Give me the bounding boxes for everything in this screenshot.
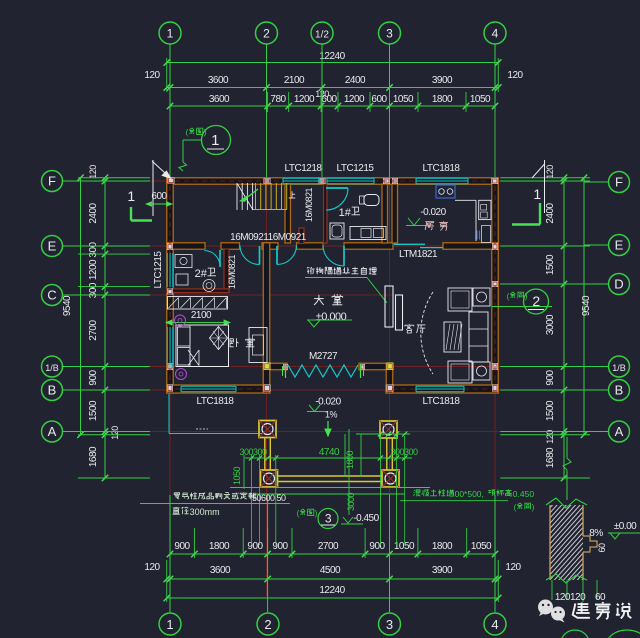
svg-text:LTC1818: LTC1818 bbox=[197, 396, 235, 407]
svg-text:C: C bbox=[47, 288, 56, 303]
svg-text:D: D bbox=[614, 277, 623, 292]
svg-text:1200: 1200 bbox=[88, 259, 99, 280]
svg-text:4740: 4740 bbox=[319, 447, 340, 458]
svg-text:1/2: 1/2 bbox=[315, 30, 329, 41]
svg-text:1/B: 1/B bbox=[45, 363, 59, 373]
svg-text:12240: 12240 bbox=[319, 51, 345, 62]
svg-text:): ) bbox=[315, 509, 318, 518]
svg-text:3: 3 bbox=[325, 512, 332, 526]
svg-text:1050: 1050 bbox=[232, 466, 242, 485]
svg-text:300: 300 bbox=[88, 282, 99, 298]
svg-text:900: 900 bbox=[272, 541, 288, 552]
svg-text:300300: 300300 bbox=[390, 447, 418, 457]
svg-text:F: F bbox=[48, 174, 56, 189]
svg-text:1800: 1800 bbox=[432, 94, 453, 105]
svg-text:120: 120 bbox=[507, 70, 523, 81]
svg-text:120: 120 bbox=[88, 165, 98, 179]
svg-text:LTM1821: LTM1821 bbox=[399, 249, 438, 260]
svg-text:16M092116M0921: 16M092116M0921 bbox=[230, 232, 307, 243]
svg-text:1500: 1500 bbox=[545, 400, 556, 421]
svg-text:3000: 3000 bbox=[346, 492, 356, 511]
svg-text:1050: 1050 bbox=[471, 541, 492, 552]
svg-text:2400: 2400 bbox=[345, 75, 366, 86]
svg-text:16M0821: 16M0821 bbox=[227, 254, 237, 289]
svg-text:120: 120 bbox=[505, 562, 521, 573]
svg-text:2700: 2700 bbox=[318, 541, 339, 552]
svg-text:1800: 1800 bbox=[345, 450, 355, 469]
svg-text:B: B bbox=[48, 383, 57, 398]
svg-text:2100: 2100 bbox=[284, 75, 305, 86]
svg-text:B: B bbox=[615, 383, 624, 398]
svg-text:3: 3 bbox=[386, 617, 393, 632]
svg-text:A: A bbox=[48, 424, 57, 439]
svg-text:120: 120 bbox=[144, 562, 160, 573]
svg-text:2400: 2400 bbox=[88, 202, 99, 223]
svg-text:3600: 3600 bbox=[208, 75, 229, 86]
svg-text:8%: 8% bbox=[589, 528, 603, 539]
svg-text:1050: 1050 bbox=[393, 94, 414, 105]
svg-text:A: A bbox=[615, 424, 624, 439]
svg-text:50600 50: 50600 50 bbox=[252, 493, 286, 503]
svg-text:600: 600 bbox=[371, 94, 387, 105]
svg-text:LTC1818: LTC1818 bbox=[423, 163, 461, 174]
svg-text:120: 120 bbox=[144, 70, 160, 81]
svg-text:1: 1 bbox=[127, 188, 135, 204]
svg-text:-0.020: -0.020 bbox=[420, 207, 446, 218]
svg-text:300: 300 bbox=[88, 241, 99, 257]
svg-text:1050: 1050 bbox=[470, 94, 491, 105]
svg-text:900: 900 bbox=[369, 541, 385, 552]
svg-text:3900: 3900 bbox=[432, 75, 453, 86]
svg-text:±0.00: ±0.00 bbox=[614, 521, 637, 532]
svg-text:1#: 1# bbox=[339, 207, 352, 219]
svg-text:2400: 2400 bbox=[545, 202, 556, 223]
svg-text:1500: 1500 bbox=[545, 254, 556, 275]
svg-text:3: 3 bbox=[386, 27, 393, 41]
svg-text:900: 900 bbox=[545, 369, 556, 385]
svg-text:1200: 1200 bbox=[344, 94, 365, 105]
svg-text:1200: 1200 bbox=[294, 94, 315, 105]
svg-text:1%: 1% bbox=[325, 410, 338, 420]
svg-text:2700: 2700 bbox=[88, 320, 99, 341]
svg-text:600: 600 bbox=[151, 191, 167, 202]
svg-text:E: E bbox=[615, 238, 624, 253]
svg-text:1: 1 bbox=[167, 27, 174, 41]
svg-text:1680: 1680 bbox=[88, 446, 99, 467]
svg-text:3000: 3000 bbox=[545, 314, 556, 335]
svg-text:16M0821: 16M0821 bbox=[304, 187, 314, 222]
svg-text:M2727: M2727 bbox=[309, 351, 338, 362]
svg-text:-0.450: -0.450 bbox=[353, 513, 379, 524]
svg-text:1: 1 bbox=[533, 186, 541, 202]
svg-text:2: 2 bbox=[263, 27, 270, 41]
svg-text:2#: 2# bbox=[195, 268, 208, 280]
svg-text:4: 4 bbox=[491, 617, 498, 632]
svg-text:120: 120 bbox=[110, 426, 120, 440]
svg-text:1800: 1800 bbox=[209, 541, 230, 552]
svg-text:00*500,: 00*500, bbox=[455, 489, 484, 499]
svg-text:(: ( bbox=[514, 503, 517, 512]
svg-text:LTC1215: LTC1215 bbox=[337, 163, 375, 174]
svg-text:4500: 4500 bbox=[320, 565, 341, 576]
svg-text:300mm: 300mm bbox=[190, 507, 220, 517]
svg-text:2100: 2100 bbox=[191, 310, 212, 321]
svg-text:9540: 9540 bbox=[62, 295, 73, 316]
svg-text:3900: 3900 bbox=[432, 565, 453, 576]
svg-text:120120: 120120 bbox=[555, 592, 586, 603]
svg-text:LTC1818: LTC1818 bbox=[423, 396, 461, 407]
svg-text:900: 900 bbox=[247, 541, 263, 552]
svg-text:1800: 1800 bbox=[432, 541, 453, 552]
svg-text:F: F bbox=[615, 175, 623, 190]
svg-text:2: 2 bbox=[264, 617, 271, 632]
svg-text:900: 900 bbox=[88, 369, 99, 385]
svg-text:3600: 3600 bbox=[209, 94, 230, 105]
svg-text:2: 2 bbox=[532, 293, 540, 309]
svg-text:9540: 9540 bbox=[581, 295, 592, 316]
svg-text:60: 60 bbox=[597, 543, 607, 553]
svg-text:780: 780 bbox=[270, 94, 286, 105]
svg-text:120: 120 bbox=[545, 165, 555, 179]
svg-text:LTC1218: LTC1218 bbox=[285, 163, 323, 174]
svg-text:±0.000: ±0.000 bbox=[316, 311, 347, 323]
svg-text:(: ( bbox=[507, 292, 510, 301]
svg-text:4: 4 bbox=[492, 27, 499, 41]
svg-text:(: ( bbox=[186, 128, 189, 137]
svg-text:900: 900 bbox=[174, 541, 190, 552]
svg-text:(: ( bbox=[297, 509, 300, 518]
svg-text:E: E bbox=[48, 239, 57, 254]
svg-text:12240: 12240 bbox=[319, 585, 345, 596]
svg-text:1/B: 1/B bbox=[612, 363, 626, 373]
svg-text:): ) bbox=[532, 503, 535, 512]
svg-text:1500: 1500 bbox=[88, 400, 99, 421]
svg-text:LTC1215: LTC1215 bbox=[153, 251, 164, 289]
svg-text:0.450: 0.450 bbox=[513, 489, 535, 499]
svg-text:1: 1 bbox=[211, 132, 219, 149]
svg-text:1: 1 bbox=[166, 617, 173, 632]
svg-text:1680: 1680 bbox=[545, 447, 556, 468]
svg-text:60: 60 bbox=[595, 592, 606, 603]
svg-text:3600: 3600 bbox=[210, 565, 231, 576]
